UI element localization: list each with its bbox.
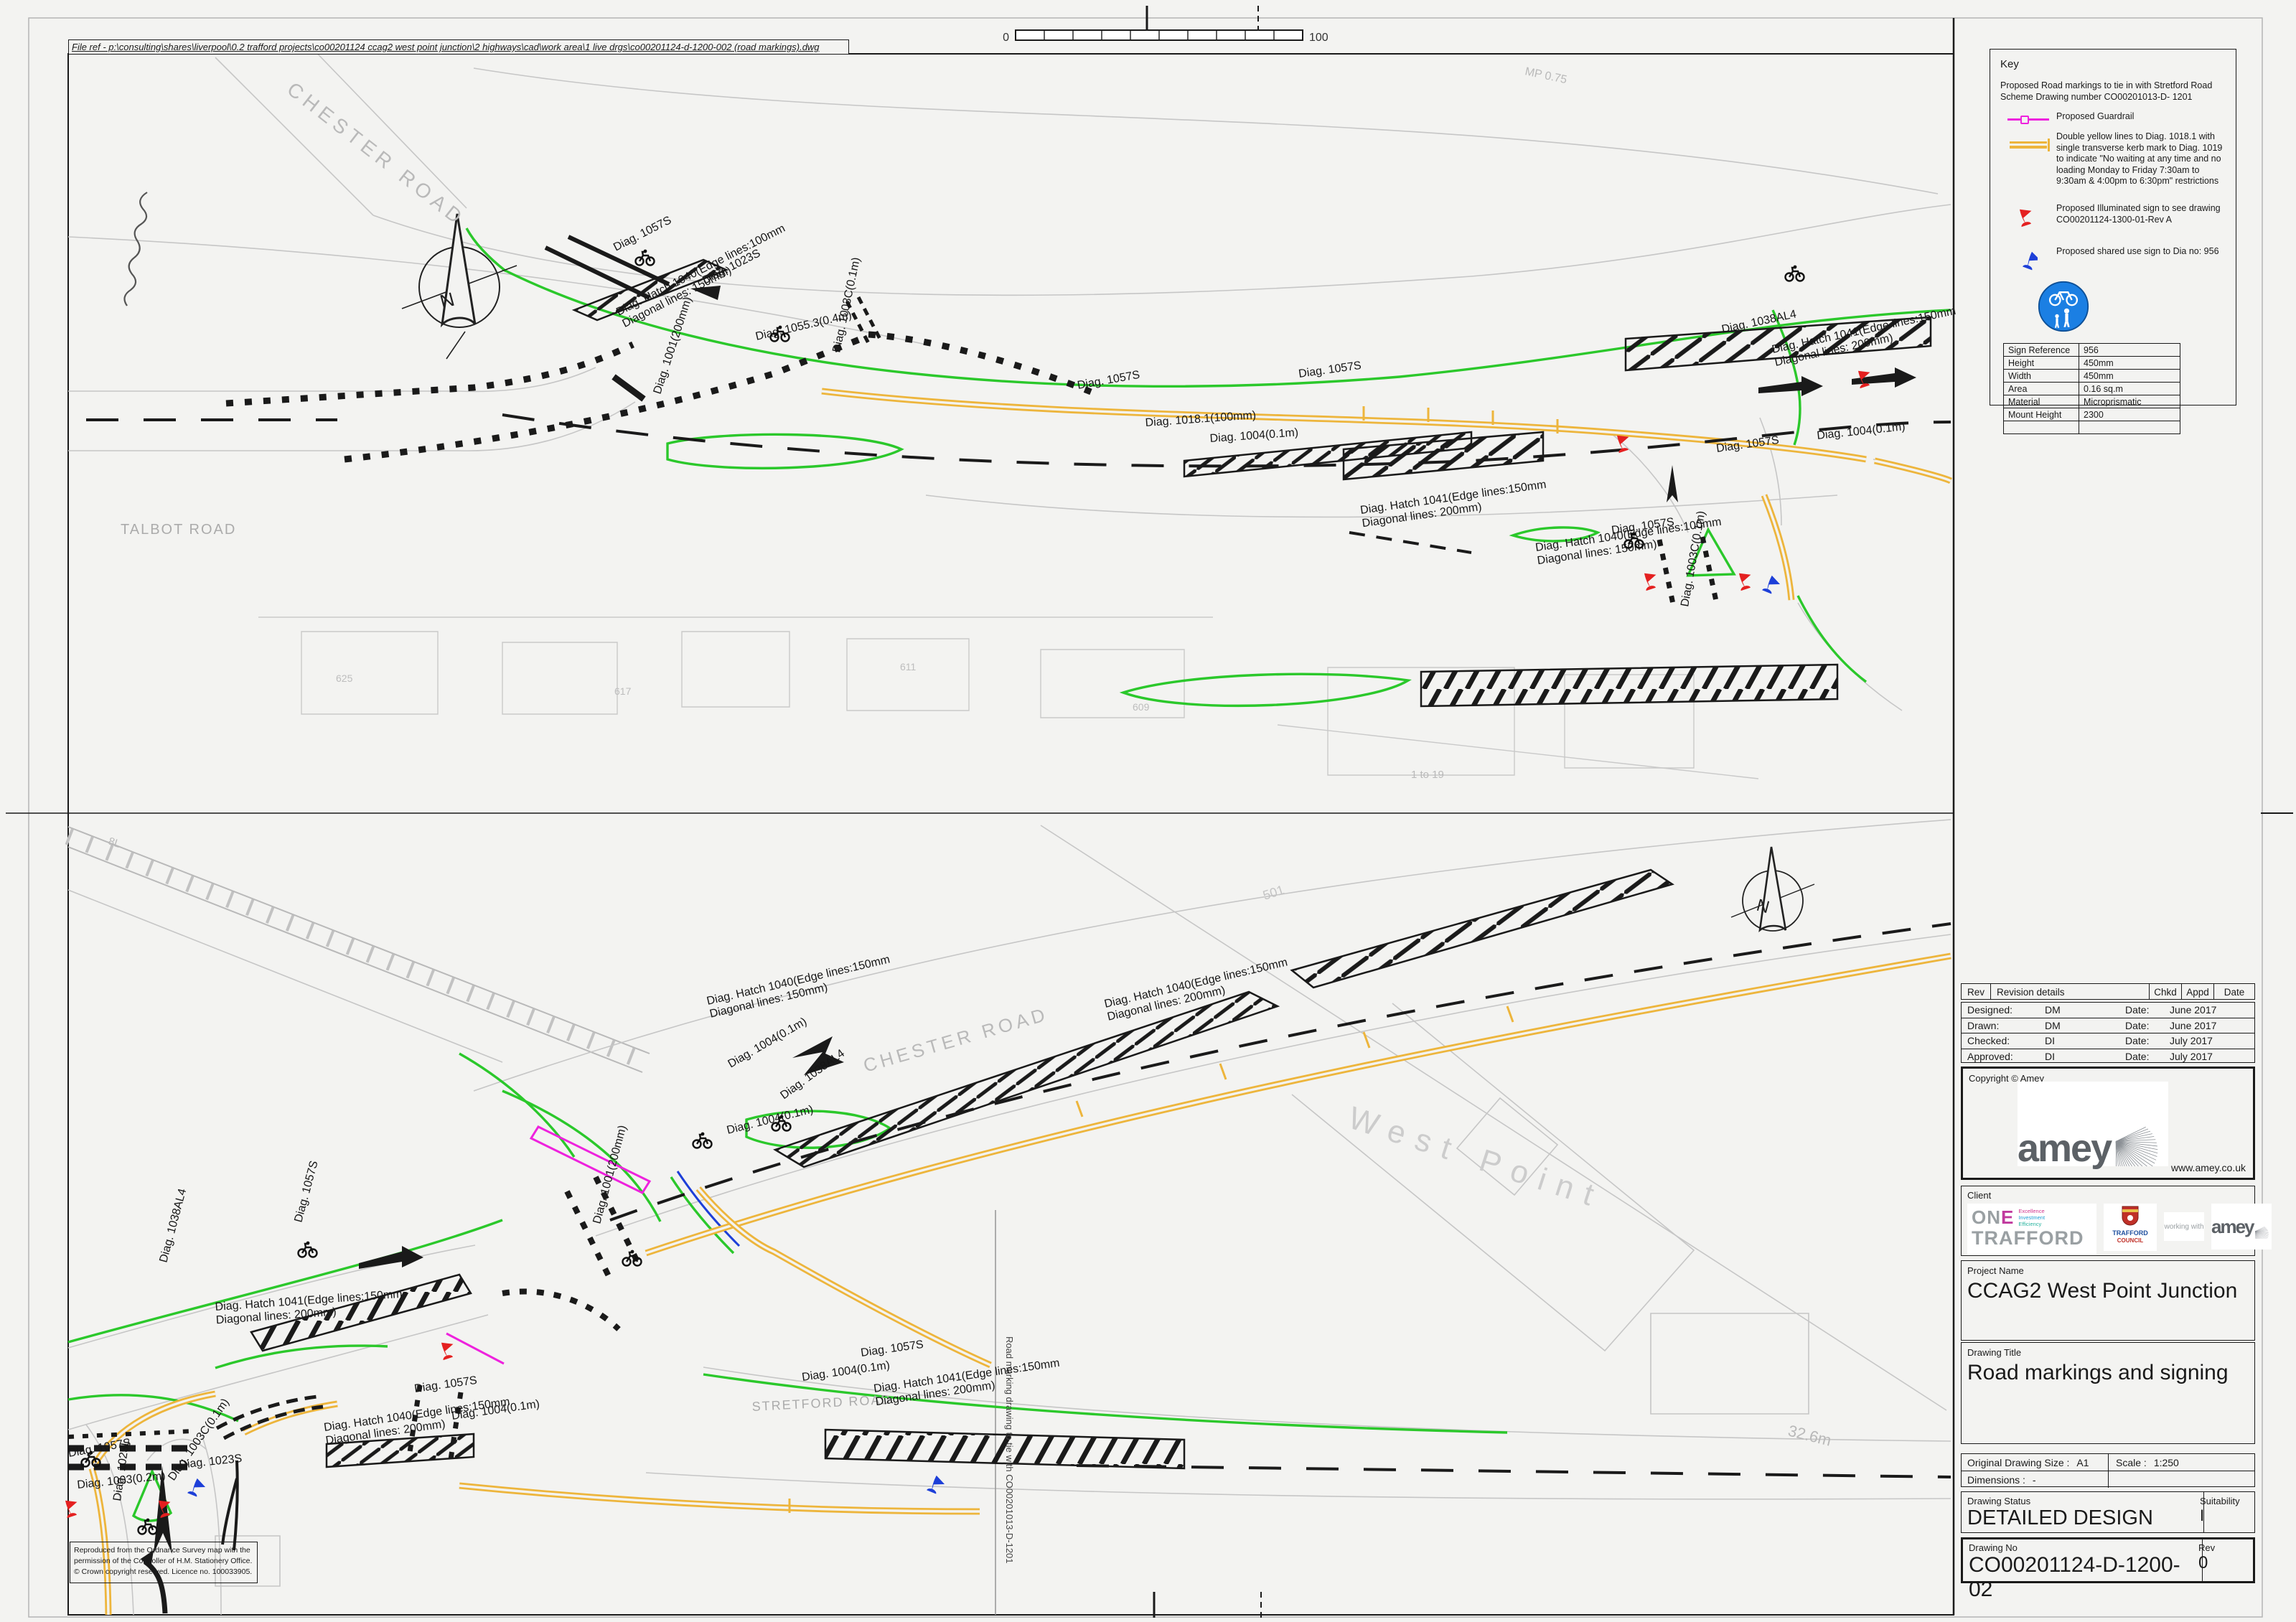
project-name-box: Project Name CCAG2 West Point Junction [1961, 1260, 2255, 1341]
sign-table-value: Microprismatic [2079, 395, 2180, 408]
cycle-marking-icon [636, 250, 655, 266]
sign-table-row: Width450mm [2004, 370, 2180, 383]
file-ref: File ref - p:\consulting\shares\liverpoo… [68, 39, 849, 55]
diag-label: Diag. 1057S [1298, 360, 1362, 380]
personnel-row: Checked:DIDate:July 2017 [1962, 1033, 2254, 1049]
project-name: CCAG2 West Point Junction [1967, 1279, 2249, 1303]
cycle-marking-icon [299, 1242, 317, 1257]
sign-table-key: Material [2004, 395, 2079, 408]
registration-marks [1147, 6, 1261, 1618]
sign-table-key: Width [2004, 370, 2079, 383]
red-flag-icon [2019, 206, 2038, 228]
personnel-box: Designed:DMDate:June 2017Drawn:DMDate:Ju… [1961, 1002, 2255, 1063]
status-value: DETAILED DESIGN [1967, 1506, 2198, 1530]
diag-label: Diag. 1057S [612, 214, 673, 253]
os-note-line1: Reproduced from the Ordnance Survey map … [74, 1545, 253, 1556]
personnel-row: Drawn:DMDate:June 2017 [1962, 1018, 2254, 1034]
key-items: Proposed GuardrailDouble yellow lines to… [2000, 111, 2229, 271]
drawing-title-box: Drawing Title Road markings and signing [1961, 1342, 2255, 1444]
sign-table-key: Height [2004, 357, 2079, 370]
key-item: Proposed Illuminated sign to see drawing… [2000, 203, 2229, 228]
diag-label: 625 [336, 672, 353, 684]
shared-use-sign-marker [927, 1474, 947, 1496]
illuminated-sign-marker [1641, 570, 1659, 591]
diag-label: Diag. 1057S [1715, 434, 1780, 455]
one-text: ONE [1972, 1206, 2014, 1229]
personnel-row: Approved:DIDate:July 2017 [1962, 1049, 2254, 1064]
drawing-title: Road markings and signing [1967, 1361, 2249, 1385]
sign-table-value: 450mm [2079, 357, 2180, 370]
diag-label: Diag. Hatch 1040(Edge lines:150mmDiagona… [706, 954, 894, 1021]
shared-use-sign-marker [187, 1477, 207, 1499]
status-label: Drawing Status [1967, 1496, 2198, 1506]
sign-table-row: Sign Reference956 [2004, 344, 2180, 357]
diag-label: 611 [900, 661, 917, 672]
shared-use-sign [2038, 281, 2229, 336]
diag-label: CHESTER ROAD [283, 78, 470, 230]
trafford-council-logo: TRAFFORD COUNCIL [2104, 1204, 2157, 1251]
rev-col: Rev [1962, 984, 1991, 1000]
size-value: A1 [2076, 1457, 2089, 1468]
scale-bar [1016, 30, 1303, 40]
sign-table-key: Mount Height [2004, 408, 2079, 421]
key-item: Double yellow lines to Diag. 1018.1 with… [2000, 131, 2229, 187]
cycle-marking-icon [693, 1133, 712, 1148]
sheet-frame [6, 6, 2293, 1618]
railway [68, 827, 650, 1072]
key-item-label: Proposed shared use sign to Dia no: 956 [2056, 246, 2219, 271]
personnel-row: Designed:DMDate:June 2017 [1962, 1003, 2254, 1018]
one-trafford-logo: ONE Excellence Investment Efficiency TRA… [1967, 1204, 2096, 1255]
double-yellow-gap [646, 956, 1951, 1253]
tagline-1: Excellence [2018, 1208, 2045, 1214]
trafford-council-line2: COUNCIL [2104, 1237, 2157, 1244]
blue-flag-icon [2019, 249, 2038, 271]
cycle-pedestrian-sign-icon [2038, 281, 2089, 332]
sign-spec-table: Sign Reference956Height450mmWidth450mmAr… [2003, 343, 2180, 434]
trafford-crest-icon [2121, 1205, 2140, 1227]
drawing-no-label: Drawing No [1969, 1542, 2196, 1553]
illuminated-sign-marker [1735, 570, 1754, 591]
size-scale-box: Original Drawing Size : A1 Scale : 1:250… [1961, 1453, 2255, 1487]
guardrail-icon [2007, 118, 2049, 121]
working-with-text: working with [2164, 1212, 2204, 1241]
sign-table-row: Height450mm [2004, 357, 2180, 370]
diag-label: 1 to 19 [1411, 769, 1444, 781]
diag-label: Diag. 1004(0.1m) [801, 1359, 891, 1384]
key-item-label: Proposed Illuminated sign to see drawing… [2056, 203, 2229, 228]
os-copyright-note: Reproduced from the Ordnance Survey map … [70, 1542, 258, 1583]
dimensions-value: - [2033, 1474, 2036, 1486]
scale-bar-label: 0 [1003, 32, 1009, 44]
diag-label: Diag. Hatch 1041(Edge lines:150mmDiagona… [873, 1357, 1062, 1408]
tree-line [124, 192, 147, 306]
tagline-2: Investment [2018, 1214, 2045, 1221]
personnel-role: Checked: [1962, 1035, 2045, 1046]
diag-label: Diag. 1004(0.1m) [1817, 421, 1906, 442]
sign-table-value: 450mm [2079, 370, 2180, 383]
personnel-date: June 2017 [2170, 1020, 2254, 1031]
client-amey-logo: amey [2211, 1204, 2272, 1250]
shared-use-sign-marker [1762, 574, 1782, 596]
north-arrow-bottom [1731, 847, 1814, 931]
personnel-date-label: Date: [2125, 1051, 2170, 1062]
bottom-double-yellow [92, 956, 1951, 1615]
os-note-line3: © Crown copyright reserved. Licence no. … [74, 1567, 253, 1578]
diag-label: CHESTER ROAD [861, 1003, 1051, 1076]
rev-value: 0 [2198, 1553, 2249, 1573]
diag-label: Diag. 1057S [860, 1339, 924, 1359]
double-yellow-gap [1875, 461, 1951, 481]
client-label: Client [1967, 1190, 1991, 1201]
suitability-label: Suitability [2200, 1496, 2250, 1506]
sign-table-row: MaterialMicroprismatic [2004, 395, 2180, 408]
personnel-date: July 2017 [2170, 1051, 2254, 1062]
diag-label: 609 [1133, 701, 1150, 713]
key-note-line1: Proposed Road markings to tie in with St… [2000, 80, 2229, 92]
os-note-line2: permission of the Controller of H.M. Sta… [74, 1556, 253, 1567]
sign-table-key: Area [2004, 383, 2079, 395]
illuminated-sign-marker [62, 1497, 80, 1518]
date-col: Date [2214, 984, 2254, 1000]
personnel-date: July 2017 [2170, 1035, 2254, 1046]
diag-label: Diag. 1004(0.1m) [726, 1016, 810, 1071]
diag-label: Diag. 1057S [292, 1160, 320, 1224]
personnel-name: DM [2045, 1004, 2125, 1016]
suitability-value: I [2200, 1506, 2250, 1525]
diag-label: Diag. 1004(0.1m) [726, 1103, 815, 1136]
client-box: Client ONE Excellence Investment Efficie… [1961, 1186, 2255, 1256]
amey-logo: amey [2018, 1082, 2168, 1166]
personnel-date-label: Date: [2125, 1020, 2170, 1031]
personnel-role: Drawn: [1962, 1020, 2045, 1031]
drawing-sheet: CHESTER ROADTALBOT ROADMP 0.751 to 19625… [0, 0, 2296, 1622]
amey-box: Copyright © Amey amey www.amey.co.uk [1961, 1067, 2255, 1180]
scale-bar-label: 100 [1309, 32, 1329, 44]
personnel-role: Approved: [1962, 1051, 2045, 1062]
key-item: Proposed Guardrail [2000, 111, 2229, 123]
personnel-role: Designed: [1962, 1004, 2045, 1016]
trafford-text: TRAFFORD [1972, 1227, 2092, 1250]
sign-table-value: 2300 [2079, 408, 2180, 421]
scale-value: 1:250 [2154, 1457, 2179, 1468]
personnel-date-label: Date: [2125, 1004, 2170, 1016]
north-arrow [402, 214, 517, 359]
revision-table-header: Rev Revision details Chkd Appd Date [1961, 983, 2255, 1000]
personnel-name: DI [2045, 1035, 2125, 1046]
illuminated-sign-marker [438, 1339, 456, 1360]
drawing-title-label: Drawing Title [1967, 1347, 2249, 1358]
diag-label: Diag. 1038AL4 [778, 1047, 847, 1102]
top-panel [68, 44, 1951, 779]
diag-label: Diag. 1057S [413, 1374, 478, 1395]
diag-label: STRETFORD ROAD [751, 1392, 892, 1414]
diag-label: MP 0.75 [1524, 65, 1568, 86]
key-title: Key [2000, 58, 2229, 70]
size-label: Original Drawing Size : [1967, 1457, 2069, 1468]
amey-logo-text: amey [2018, 1131, 2111, 1166]
diag-label: 501 [1261, 882, 1286, 902]
tagline-3: Efficiency [2018, 1221, 2045, 1227]
diag-label: 32.6m [1786, 1422, 1833, 1450]
personnel-name: DI [2045, 1051, 2125, 1062]
diag-label: Diag. 1057S [1077, 369, 1141, 392]
rev-label: Rev [2198, 1542, 2249, 1553]
key-item: Proposed shared use sign to Dia no: 956 [2000, 246, 2229, 271]
double-yellow-gap [698, 1189, 990, 1365]
top-black-markings [86, 237, 1951, 607]
appd-col: Appd [2182, 984, 2214, 1000]
project-name-label: Project Name [1967, 1265, 2249, 1276]
chkd-col: Chkd [2150, 984, 2182, 1000]
key-item-label: Proposed Guardrail [2056, 111, 2134, 123]
diag-label: Diag. 1004(0.1m) [1209, 426, 1299, 445]
sign-table-value [2079, 421, 2180, 434]
cycle-marking-icon [623, 1250, 642, 1266]
diag-label: Diag. Hatch 1041(Edge lines:150mmDiagona… [1359, 479, 1549, 530]
key-item-label: Double yellow lines to Diag. 1018.1 with… [2056, 131, 2229, 187]
dimensions-label: Dimensions : [1967, 1474, 2025, 1486]
sign-table-value: 0.16 sq.m [2079, 383, 2180, 395]
top-double-yellow [822, 391, 1951, 600]
amey-swoosh-small-icon [2254, 1214, 2272, 1239]
sign-table-row: Mount Height2300 [2004, 408, 2180, 421]
diag-label: 617 [614, 685, 632, 697]
diag-label: 8L [107, 835, 122, 850]
sign-table-value: 956 [2079, 344, 2180, 357]
drawing-no-value: CO00201124-D-1200-02 [1969, 1553, 2196, 1602]
plan-drawing-canvas: CHESTER ROADTALBOT ROADMP 0.751 to 19625… [0, 0, 2296, 1622]
personnel-date: June 2017 [2170, 1004, 2254, 1016]
amey-swoosh-icon [2111, 1087, 2168, 1166]
key-note-line2: Scheme Drawing number CO00201013-D- 1201 [2000, 92, 2229, 103]
key-box: Key Proposed Road markings to tie in wit… [1990, 49, 2236, 405]
sign-table-key: Sign Reference [2004, 344, 2079, 357]
diag-label: West Point [1344, 1100, 1609, 1216]
revision-details-col: Revision details [1991, 984, 2150, 1000]
diag-label: TALBOT ROAD [121, 522, 236, 538]
double-yellow-icon [2010, 141, 2047, 151]
drawing-no-box: Drawing No CO00201124-D-1200-02 Rev 0 [1961, 1537, 2255, 1583]
amey-url: www.amey.co.uk [2171, 1162, 2246, 1173]
cycle-marking-icon [1786, 266, 1804, 281]
scale-label: Scale : [2116, 1457, 2147, 1468]
sign-table-row: Area0.16 sq.m [2004, 383, 2180, 395]
personnel-date-label: Date: [2125, 1035, 2170, 1046]
status-box: Drawing Status DETAILED DESIGN Suitabili… [1961, 1491, 2255, 1533]
sign-table-row [2004, 421, 2180, 434]
personnel-name: DM [2045, 1020, 2125, 1031]
diag-label: Diag. 1038AL4 [157, 1187, 189, 1264]
client-amey-text: amey [2211, 1216, 2254, 1238]
sign-table-key [2004, 421, 2079, 434]
trafford-council-line1: TRAFFORD [2104, 1230, 2157, 1237]
